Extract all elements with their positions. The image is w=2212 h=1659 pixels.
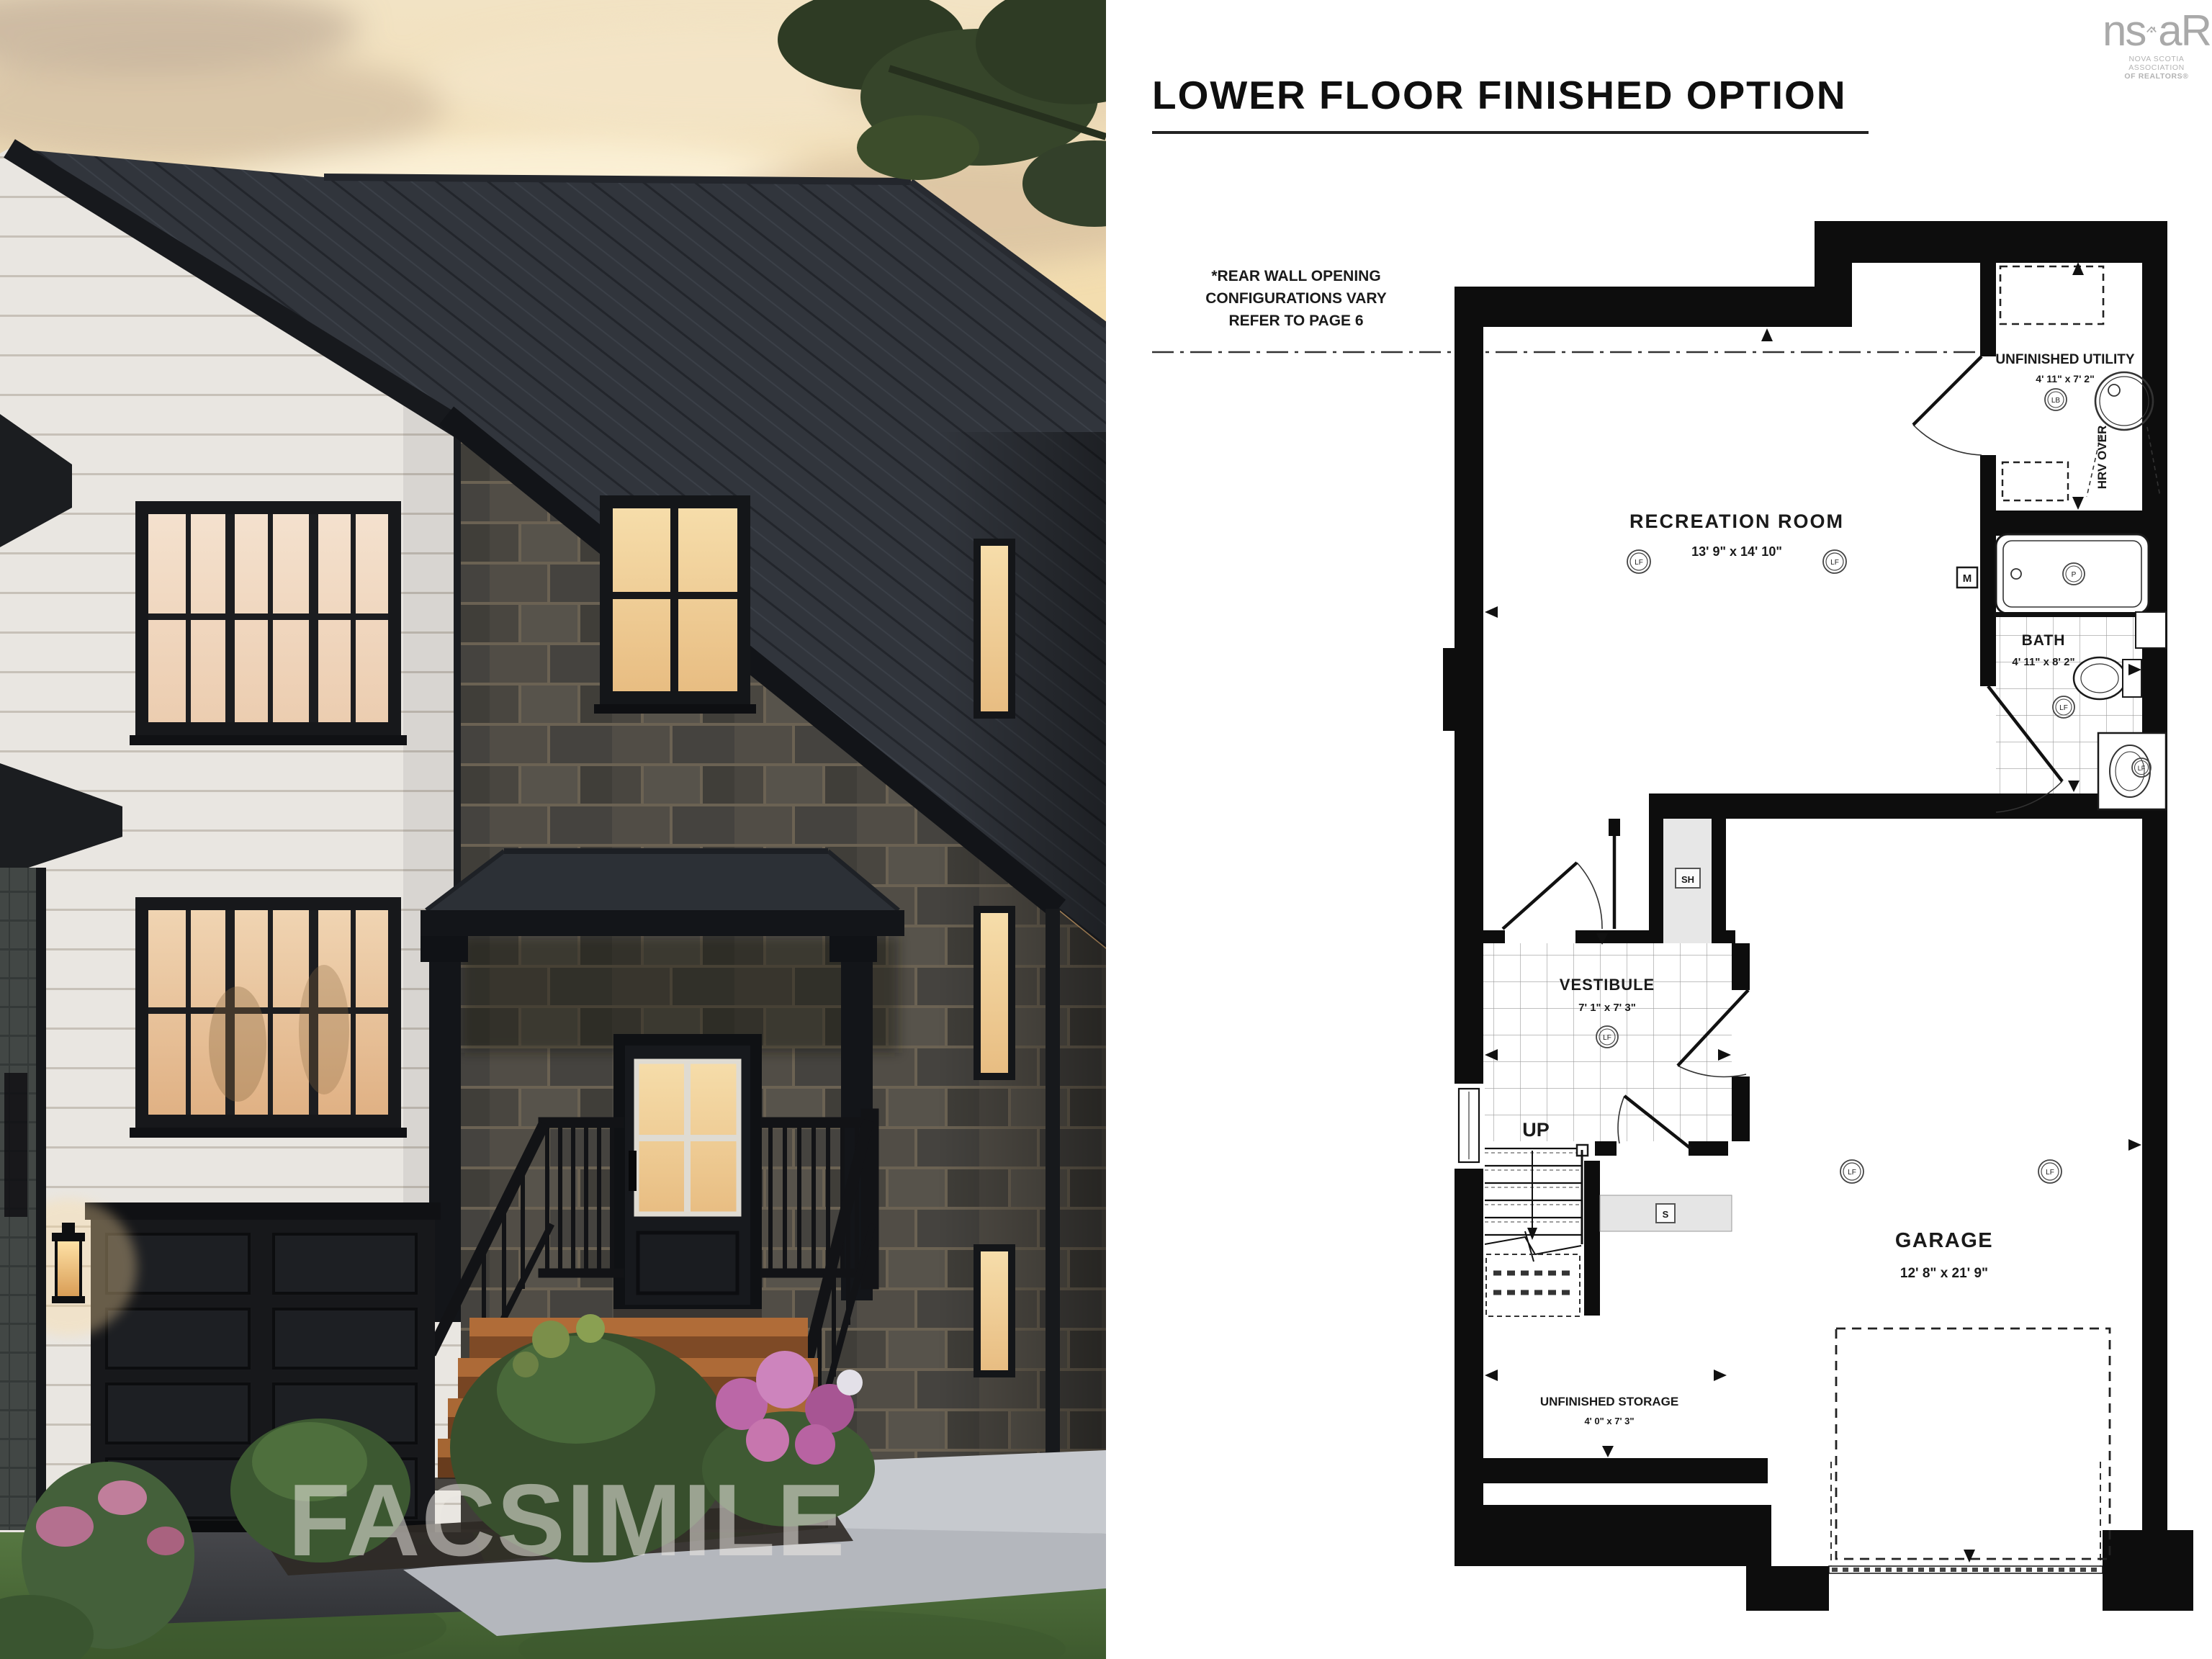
svg-text:4' 11" x 7' 2": 4' 11" x 7' 2" (2036, 373, 2094, 385)
lower-left-window (130, 897, 407, 1138)
svg-text:LB: LB (2051, 397, 2061, 405)
light-fixture-symbol: LF (2038, 1160, 2062, 1183)
logo-ns: ns (2103, 12, 2145, 50)
svg-text:P: P (2072, 571, 2077, 579)
svg-text:LF: LF (1603, 1034, 1611, 1042)
light-fixture-symbol: LF (2053, 696, 2074, 718)
svg-text:LF: LF (2138, 765, 2146, 772)
facsimile-watermark: FACSIMILE (288, 1463, 846, 1578)
shelf-s: S (1600, 1195, 1732, 1231)
svg-text:LF: LF (1848, 1169, 1856, 1177)
svg-text:LF: LF (1635, 559, 1643, 567)
svg-text:4' 0" x 7' 3": 4' 0" x 7' 3" (1584, 1416, 1634, 1426)
svg-text:LF: LF (2046, 1169, 2054, 1177)
door-leaf (1913, 356, 1982, 425)
svg-text:UNFINISHED STORAGE: UNFINISHED STORAGE (1540, 1395, 1678, 1408)
lb-symbol: LB (2045, 389, 2067, 410)
svg-text:REFER TO PAGE 6: REFER TO PAGE 6 (1228, 313, 1363, 329)
hallway-closet: SH (1503, 819, 1712, 943)
sh-label: SH (1676, 868, 1700, 888)
porch-fascia (421, 910, 904, 936)
room-garage: GARAGE 12' 8" x 21' 9" LF LF (1836, 1160, 2110, 1559)
svg-text:CONFIGURATIONS VARY: CONFIGURATIONS VARY (1205, 290, 1387, 307)
room-storage: UNFINISHED STORAGE 4' 0" x 7' 3" (1540, 1395, 1678, 1426)
side-slit-windows (974, 539, 1015, 1377)
bathtub: P (1995, 534, 2149, 617)
garage-door-opening (1829, 1462, 2103, 1573)
svg-text:BATH: BATH (2022, 632, 2066, 649)
light-fixture-symbol: LF (2132, 758, 2151, 777)
house-photo-panel: FACSIMILE (0, 0, 1106, 1659)
floorplan-panel: LOWER FLOOR FINISHED OPTION ns aR NOVA S… (1106, 0, 2212, 1659)
house-icon (2146, 10, 2157, 50)
understair-storage (1486, 1254, 1580, 1316)
svg-text:M: M (1963, 572, 1972, 585)
floorplan-svg: *REAR WALL OPENING CONFIGURATIONS VARY R… (1138, 209, 2212, 1620)
svg-text:LF: LF (1830, 559, 1839, 567)
stone-tower-window (594, 495, 756, 714)
listing-sheet: FACSIMILE LOWER FLOOR FINISHED OPTION ns… (0, 0, 2212, 1659)
linen-shelf (2136, 612, 2166, 648)
door-swing (1913, 425, 1982, 455)
svg-text:GARAGE: GARAGE (1895, 1229, 1993, 1252)
svg-text:LF: LF (2059, 704, 2068, 712)
door-handle (629, 1151, 637, 1191)
garage-slab-outline (1836, 1328, 2110, 1559)
svg-text:13' 9" x 14' 10": 13' 9" x 14' 10" (1691, 544, 1782, 559)
room-recreation: RECREATION ROOM 13' 9" x 14' 10" LF LF (1627, 511, 1846, 573)
svg-text:RECREATION ROOM: RECREATION ROOM (1629, 511, 1844, 532)
upper-left-window (130, 501, 407, 745)
room-utility: UNFINISHED UTILITY 4' 11" x 7' 2" LB HRV… (1913, 266, 2160, 500)
house-rendering: FACSIMILE (0, 0, 1106, 1659)
page-title: LOWER FLOOR FINISHED OPTION (1152, 72, 1869, 134)
logo-ar: aR (2158, 12, 2211, 50)
vanity-sink (2098, 733, 2166, 809)
toilet (2074, 657, 2141, 699)
svg-text:*REAR WALL OPENING: *REAR WALL OPENING (1211, 268, 1380, 284)
meter-box: M (1957, 567, 1977, 588)
light-fixture-symbol: LF (1823, 550, 1846, 573)
light-fixture-symbol: LF (1596, 1026, 1618, 1048)
front-entry-door (1453, 1084, 1485, 1169)
svg-text:SH: SH (1681, 874, 1694, 885)
svg-text:HRV OVER: HRV OVER (2095, 426, 2109, 490)
svg-text:7' 1" x 7' 3": 7' 1" x 7' 3" (1578, 1002, 1636, 1014)
light-fixture-symbol: LF (1627, 550, 1650, 573)
svg-text:S: S (1663, 1209, 1669, 1220)
svg-text:UNFINISHED UTILITY: UNFINISHED UTILITY (1995, 352, 2134, 367)
svg-text:12' 8" x 21' 9": 12' 8" x 21' 9" (1900, 1266, 1988, 1281)
equipment-pad (2000, 266, 2103, 324)
logo-subtext-1: NOVA SCOTIA ASSOCIATION (2103, 55, 2211, 72)
nsar-logo: ns aR NOVA SCOTIA ASSOCIATION OF REALTOR… (2103, 10, 2211, 81)
svg-text:VESTIBULE: VESTIBULE (1560, 976, 1655, 994)
logo-subtext-2: OF REALTORS® (2103, 72, 2211, 81)
light-fixture-symbol: LF (1840, 1160, 1863, 1183)
svg-text:4' 11" x 8' 2": 4' 11" x 8' 2" (2012, 656, 2074, 668)
vestibule-tile-floor (1483, 943, 1732, 1141)
floorplan-drawing: *REAR WALL OPENING CONFIGURATIONS VARY R… (1138, 209, 2212, 1620)
front-door (613, 1034, 762, 1319)
door-swing (1577, 863, 1602, 929)
equipment-pad (2002, 462, 2068, 500)
door-leaf (1503, 863, 1577, 929)
svg-text:UP: UP (1522, 1119, 1550, 1141)
stairs-up: UP (1485, 1119, 1588, 1316)
opening-arrows (1485, 262, 2141, 1563)
